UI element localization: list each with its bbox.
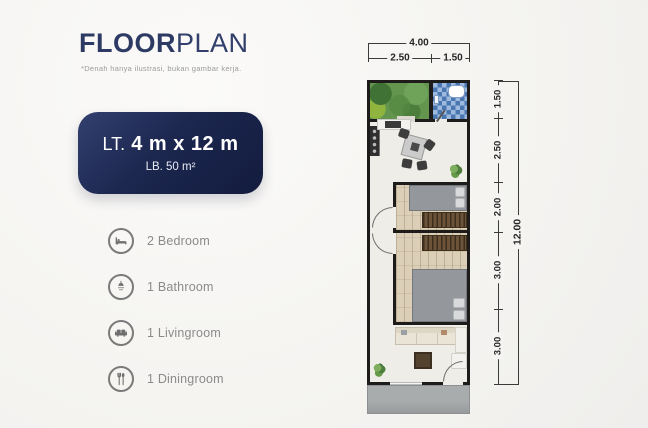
legend-item-bathroom: 1 Bathroom xyxy=(108,274,214,300)
title-light: PLAN xyxy=(176,28,249,58)
wall-bedroom-left-c xyxy=(393,254,396,325)
legend-label: 1 Livingroom xyxy=(147,326,221,340)
dim-tick-top-mid xyxy=(431,54,432,63)
sofa-cushion xyxy=(441,330,447,335)
terrace-slab xyxy=(367,385,470,414)
dim-right-segment-label: 2.00 xyxy=(493,194,504,221)
dim-witness-left xyxy=(368,43,369,62)
wardrobe-2 xyxy=(422,235,467,251)
legend-label: 1 Diningroom xyxy=(147,372,224,386)
wardrobe-1 xyxy=(422,212,467,228)
bedroom-1-door-arc xyxy=(372,207,393,228)
garden-area xyxy=(370,83,429,119)
legend-item-livingroom: 1 Livingroom xyxy=(108,320,221,346)
plant-living xyxy=(373,363,386,377)
bed-2-pillow xyxy=(453,298,465,308)
wall-garden-bathroom xyxy=(429,80,433,122)
badge-land-size: LT. 4 m x 12 m xyxy=(103,133,239,156)
dim-right-segment-label: 1.50 xyxy=(493,86,504,113)
dining-chair xyxy=(416,160,427,170)
dim-top-total-label: 4.00 xyxy=(406,38,431,49)
plant-kitchen xyxy=(449,164,463,178)
dim-witness-right xyxy=(469,43,470,62)
legend-item-diningroom: 1 Diningroom xyxy=(108,366,224,392)
page-title: FLOORPLAN xyxy=(79,28,249,59)
kitchen-stove xyxy=(370,126,380,156)
wall-bedroom-left-a xyxy=(393,182,396,207)
dim-cap-bottom xyxy=(498,384,519,385)
bathroom-sink xyxy=(434,95,439,104)
wall-bedroom-divider xyxy=(393,230,470,233)
bed-1-pillow xyxy=(455,198,465,208)
dim-top-segment-label: 1.50 xyxy=(440,53,465,64)
floorplan-drawing xyxy=(367,80,470,385)
entrance-door-arc xyxy=(443,361,463,382)
dim-tick-right xyxy=(494,309,503,310)
legend-label: 2 Bedroom xyxy=(147,234,210,248)
dim-right-segment-label: 3.00 xyxy=(493,333,504,360)
badge-building-size: LB. 50 m² xyxy=(146,161,196,173)
bed-2-pillow xyxy=(453,310,465,320)
wall-top xyxy=(367,80,470,83)
dim-tick-right xyxy=(494,232,503,233)
shower-icon xyxy=(108,274,134,300)
legend-item-bedroom: 2 Bedroom xyxy=(108,228,210,254)
badge-lt-value: 4 m x 12 m xyxy=(131,133,238,156)
dim-right-segment-label: 2.50 xyxy=(493,137,504,164)
bed-1-pillow xyxy=(455,187,465,197)
sofa-cushion xyxy=(401,330,407,335)
legend-label: 1 Bathroom xyxy=(147,280,214,294)
bed-icon xyxy=(108,228,134,254)
dim-top-segment-label: 2.50 xyxy=(387,53,412,64)
dim-right-total-label: 12.00 xyxy=(513,215,524,249)
kitchen-sink xyxy=(385,121,401,128)
size-badge: LT. 4 m x 12 m LB. 50 m² xyxy=(78,112,263,194)
wall-bedroom-block-bottom xyxy=(393,322,470,325)
sofa-icon xyxy=(108,320,134,346)
dining-chair xyxy=(401,158,412,169)
dim-right-segment-label: 3.00 xyxy=(493,257,504,284)
badge-lt-prefix: LT. xyxy=(103,134,126,155)
title-bold: FLOOR xyxy=(79,28,176,58)
dim-tick-right xyxy=(494,182,503,183)
disclaimer-text: *Denah hanya ilustrasi, bukan gambar ker… xyxy=(81,64,241,73)
dim-cap-top xyxy=(498,81,519,82)
wall-section1-b xyxy=(415,119,435,122)
floorplan-flyer: FLOORPLAN *Denah hanya ilustrasi, bukan … xyxy=(0,0,648,428)
bedroom-2-door-arc xyxy=(372,233,393,254)
coffee-table xyxy=(414,352,432,369)
sofa-chaise xyxy=(455,327,467,353)
cutlery-icon xyxy=(108,366,134,392)
bathtub xyxy=(448,85,465,98)
dim-tick-right xyxy=(494,118,503,119)
wall-section1-c xyxy=(447,119,470,122)
